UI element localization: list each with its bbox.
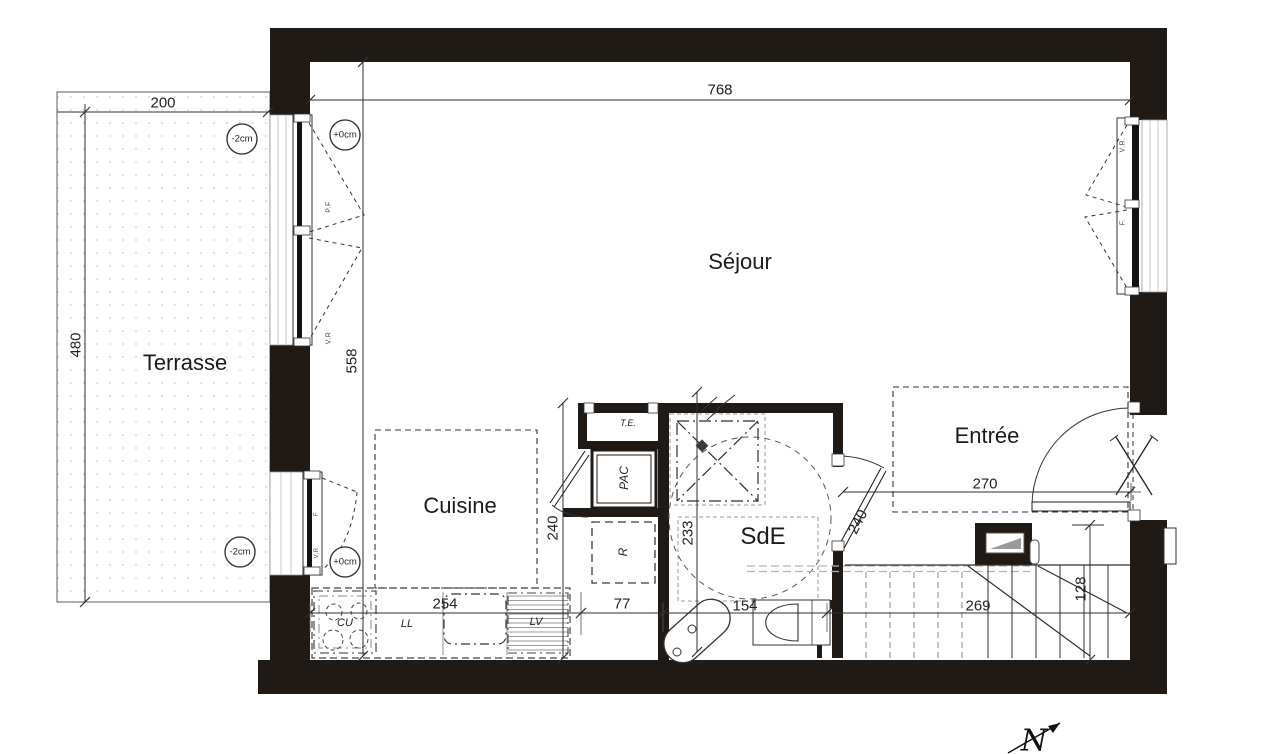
- dim-154: 154: [732, 598, 757, 615]
- window-tag-f-kitchen: F: [314, 512, 320, 516]
- dim-77: 77: [614, 596, 631, 613]
- level-terrasse-bottom: -2cm: [229, 547, 250, 558]
- dim-270: 270: [972, 476, 997, 493]
- dim-233: 233: [680, 520, 697, 545]
- room-label-terrasse: Terrasse: [143, 350, 227, 376]
- room-outlines: [0, 0, 1288, 754]
- dim-254: 254: [432, 596, 457, 613]
- room-label-sde: SdE: [740, 523, 785, 551]
- dim-480: 480: [68, 332, 85, 357]
- label-pac: PAC: [617, 466, 631, 490]
- label-cu: CU: [337, 617, 353, 629]
- level-sejour-window: +0cm: [333, 130, 357, 141]
- dim-768: 768: [707, 82, 732, 99]
- dim-240-cuisine: 240: [545, 515, 562, 540]
- window-tag-f-right: F.: [1120, 219, 1127, 225]
- window-tag-vr-kitchen: V.R: [314, 548, 320, 559]
- dim-128: 128: [1073, 576, 1090, 601]
- label-te: T.E.: [620, 418, 636, 428]
- label-r: R: [616, 548, 630, 557]
- room-label-sejour: Séjour: [708, 249, 772, 275]
- entree-outline: [893, 387, 1128, 512]
- room-label-entree: Entrée: [955, 423, 1020, 449]
- level-cuisine-window: +0cm: [333, 557, 357, 568]
- dim-269: 269: [965, 598, 990, 615]
- floor-plan: Terrasse Séjour Cuisine SdE Entrée 768 2…: [0, 0, 1288, 754]
- window-tag-vr-left: V.R: [326, 332, 333, 345]
- room-label-cuisine: Cuisine: [423, 493, 496, 519]
- north-letter: N: [1021, 724, 1047, 754]
- window-tag-pf-left: P.F: [326, 201, 333, 213]
- dim-200: 200: [150, 95, 175, 112]
- label-lv: LV: [530, 616, 543, 628]
- dim-558: 558: [344, 348, 361, 373]
- level-terrasse-top: -2cm: [231, 134, 252, 145]
- window-tag-vr-right: V.R.: [1120, 138, 1127, 153]
- label-ll: LL: [401, 618, 413, 630]
